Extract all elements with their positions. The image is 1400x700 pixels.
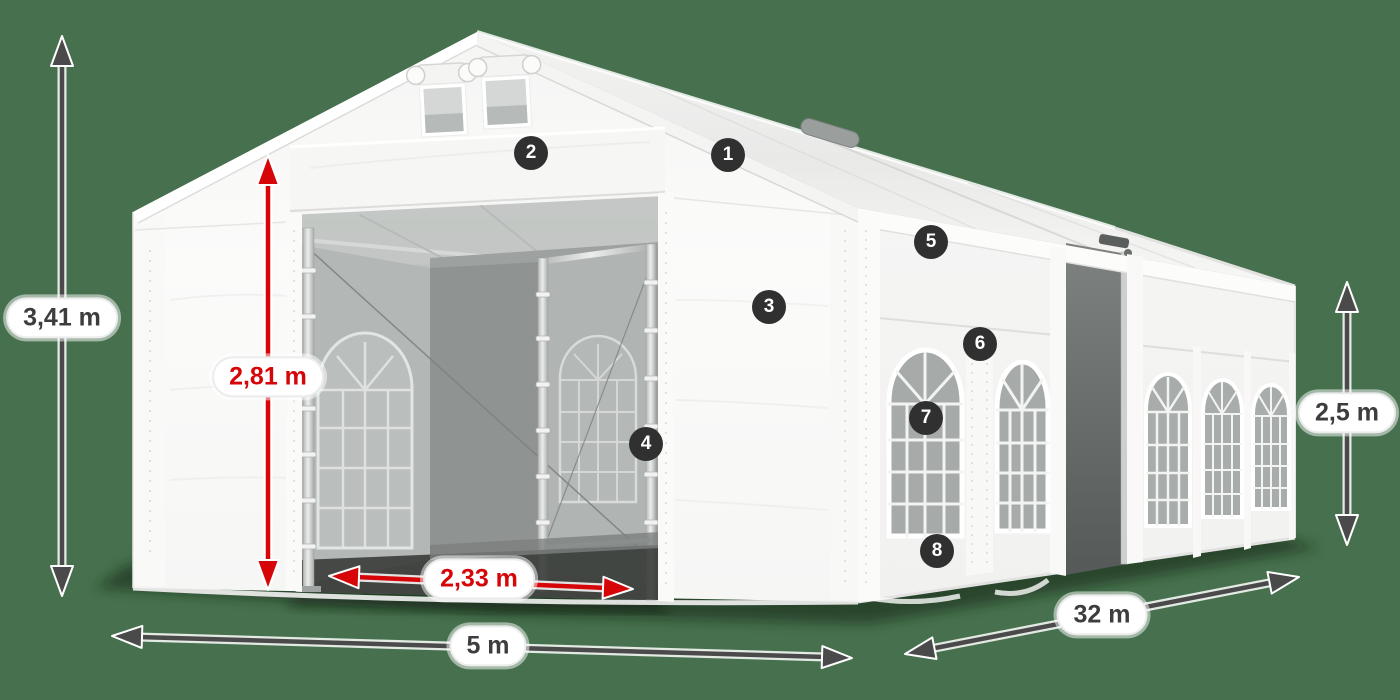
tent-dimension-diagram: 3,41 m 2,81 m 2,33 m 5 m 32 m 2,5 m 1 2 … (0, 0, 1400, 700)
dimension-label-total-height: 3,41 m (6, 297, 118, 338)
tent-illustration (0, 0, 1400, 700)
side-window-3 (1146, 374, 1190, 526)
side-window-5 (1253, 385, 1289, 509)
gable-right-corner-band (830, 206, 858, 602)
side-window-1 (889, 350, 962, 536)
callout-4: 4 (629, 427, 663, 461)
callout-2: 2 (514, 136, 548, 170)
callout-8: 8 (920, 534, 954, 568)
dimension-label-entrance-width: 2,33 m (423, 558, 535, 599)
callout-5: 5 (914, 225, 948, 259)
window-divider-strip (966, 333, 993, 576)
callout-3: 3 (752, 290, 786, 324)
side-door-pole (1121, 252, 1128, 564)
inner-gate-window (560, 336, 636, 502)
side-door-opening (1066, 234, 1132, 575)
side-window-4 (1203, 380, 1242, 517)
side-window-2 (997, 362, 1048, 531)
dimension-label-entrance-height: 2,81 m (212, 356, 324, 397)
inner-left-panel-window (318, 333, 412, 548)
callout-7: 7 (909, 401, 943, 435)
entrance-opening (296, 194, 660, 600)
dimension-label-tent-width: 5 m (449, 625, 526, 666)
dimension-label-tent-length: 32 m (1057, 594, 1148, 635)
callout-6: 6 (963, 327, 997, 361)
dimension-label-side-height: 2,5 m (1298, 392, 1396, 433)
gable-left-corner-band (133, 212, 165, 588)
callout-1: 1 (711, 138, 745, 172)
side-corner-band (858, 210, 880, 602)
